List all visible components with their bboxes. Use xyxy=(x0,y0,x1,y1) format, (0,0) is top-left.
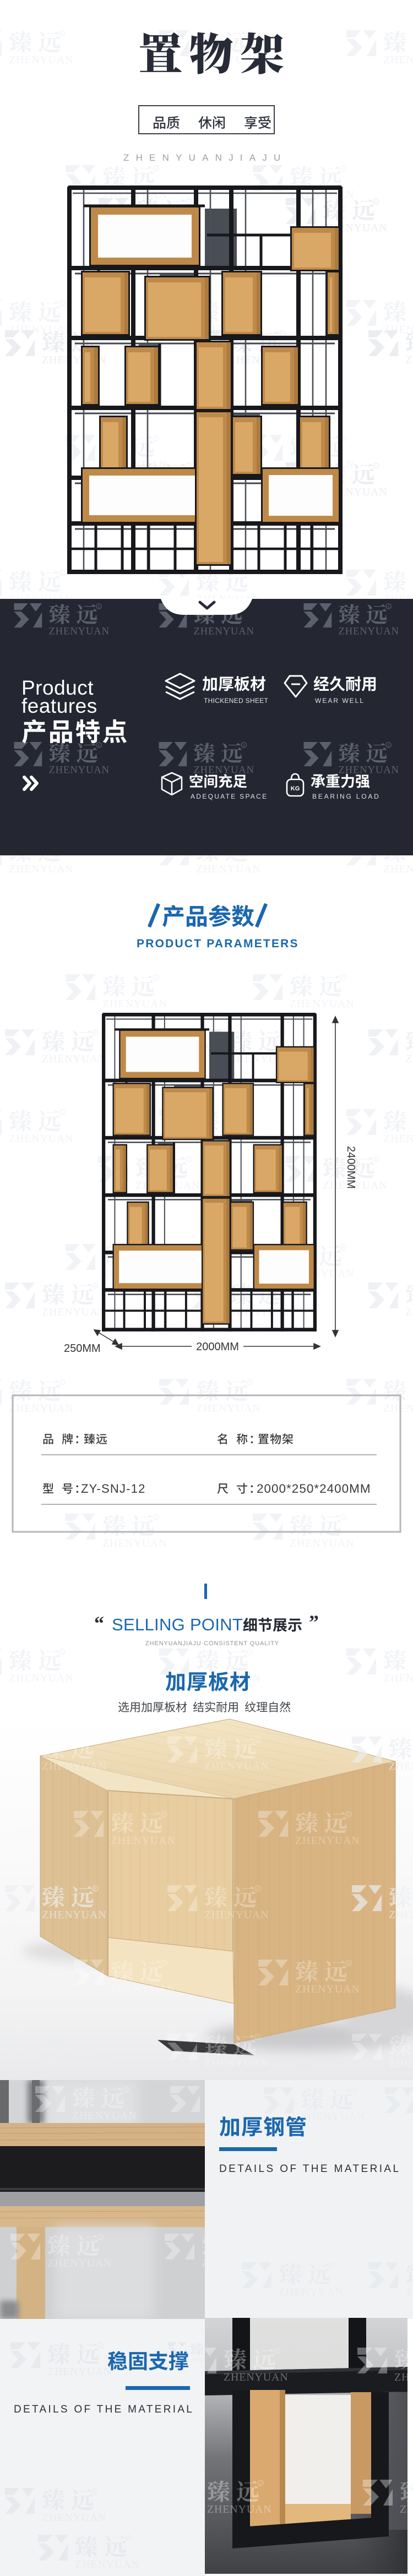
svg-text:SELLING POINT/: SELLING POINT/ xyxy=(112,1615,248,1634)
svg-text:ZY-SNJ-12: ZY-SNJ-12 xyxy=(81,1482,146,1496)
svg-text:features: features xyxy=(21,695,97,717)
svg-text:KG: KG xyxy=(291,785,300,792)
svg-text:ZHENYUANJIAJU·CONSISTENT QUALI: ZHENYUANJIAJU·CONSISTENT QUALITY xyxy=(145,1640,279,1647)
svg-text:BEARING LOAD: BEARING LOAD xyxy=(312,793,381,800)
svg-text:250MM: 250MM xyxy=(64,1342,101,1355)
svg-text:”: ” xyxy=(309,1611,319,1633)
svg-text:THICKENED SHEET: THICKENED SHEET xyxy=(204,697,269,705)
svg-text:2000*250*2400MM: 2000*250*2400MM xyxy=(257,1482,371,1496)
svg-text:ZHENYUANJIAJU: ZHENYUANJIAJU xyxy=(123,152,287,163)
svg-text:ADEQUATE SPACE: ADEQUATE SPACE xyxy=(191,793,268,800)
svg-text:DETAILS OF THE MATERIAL: DETAILS OF THE MATERIAL xyxy=(219,2163,400,2175)
svg-text:WEAR WELL: WEAR WELL xyxy=(315,697,365,705)
svg-text:DETAILS OF THE MATERIAL: DETAILS OF THE MATERIAL xyxy=(14,2404,194,2415)
svg-text:“: “ xyxy=(94,1612,104,1634)
svg-text:PRODUCT PARAMETERS: PRODUCT PARAMETERS xyxy=(137,937,299,950)
svg-text:2000MM: 2000MM xyxy=(196,1341,239,1353)
svg-text:2400MM: 2400MM xyxy=(345,1146,357,1189)
